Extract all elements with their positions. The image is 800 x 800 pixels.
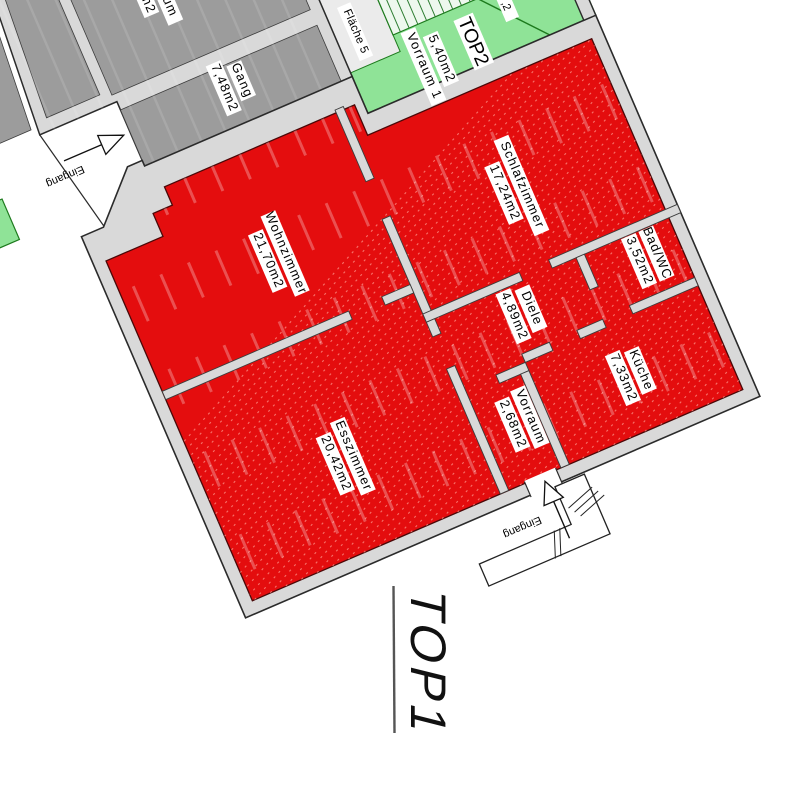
svg-text:TOP1: TOP1 <box>400 583 456 745</box>
